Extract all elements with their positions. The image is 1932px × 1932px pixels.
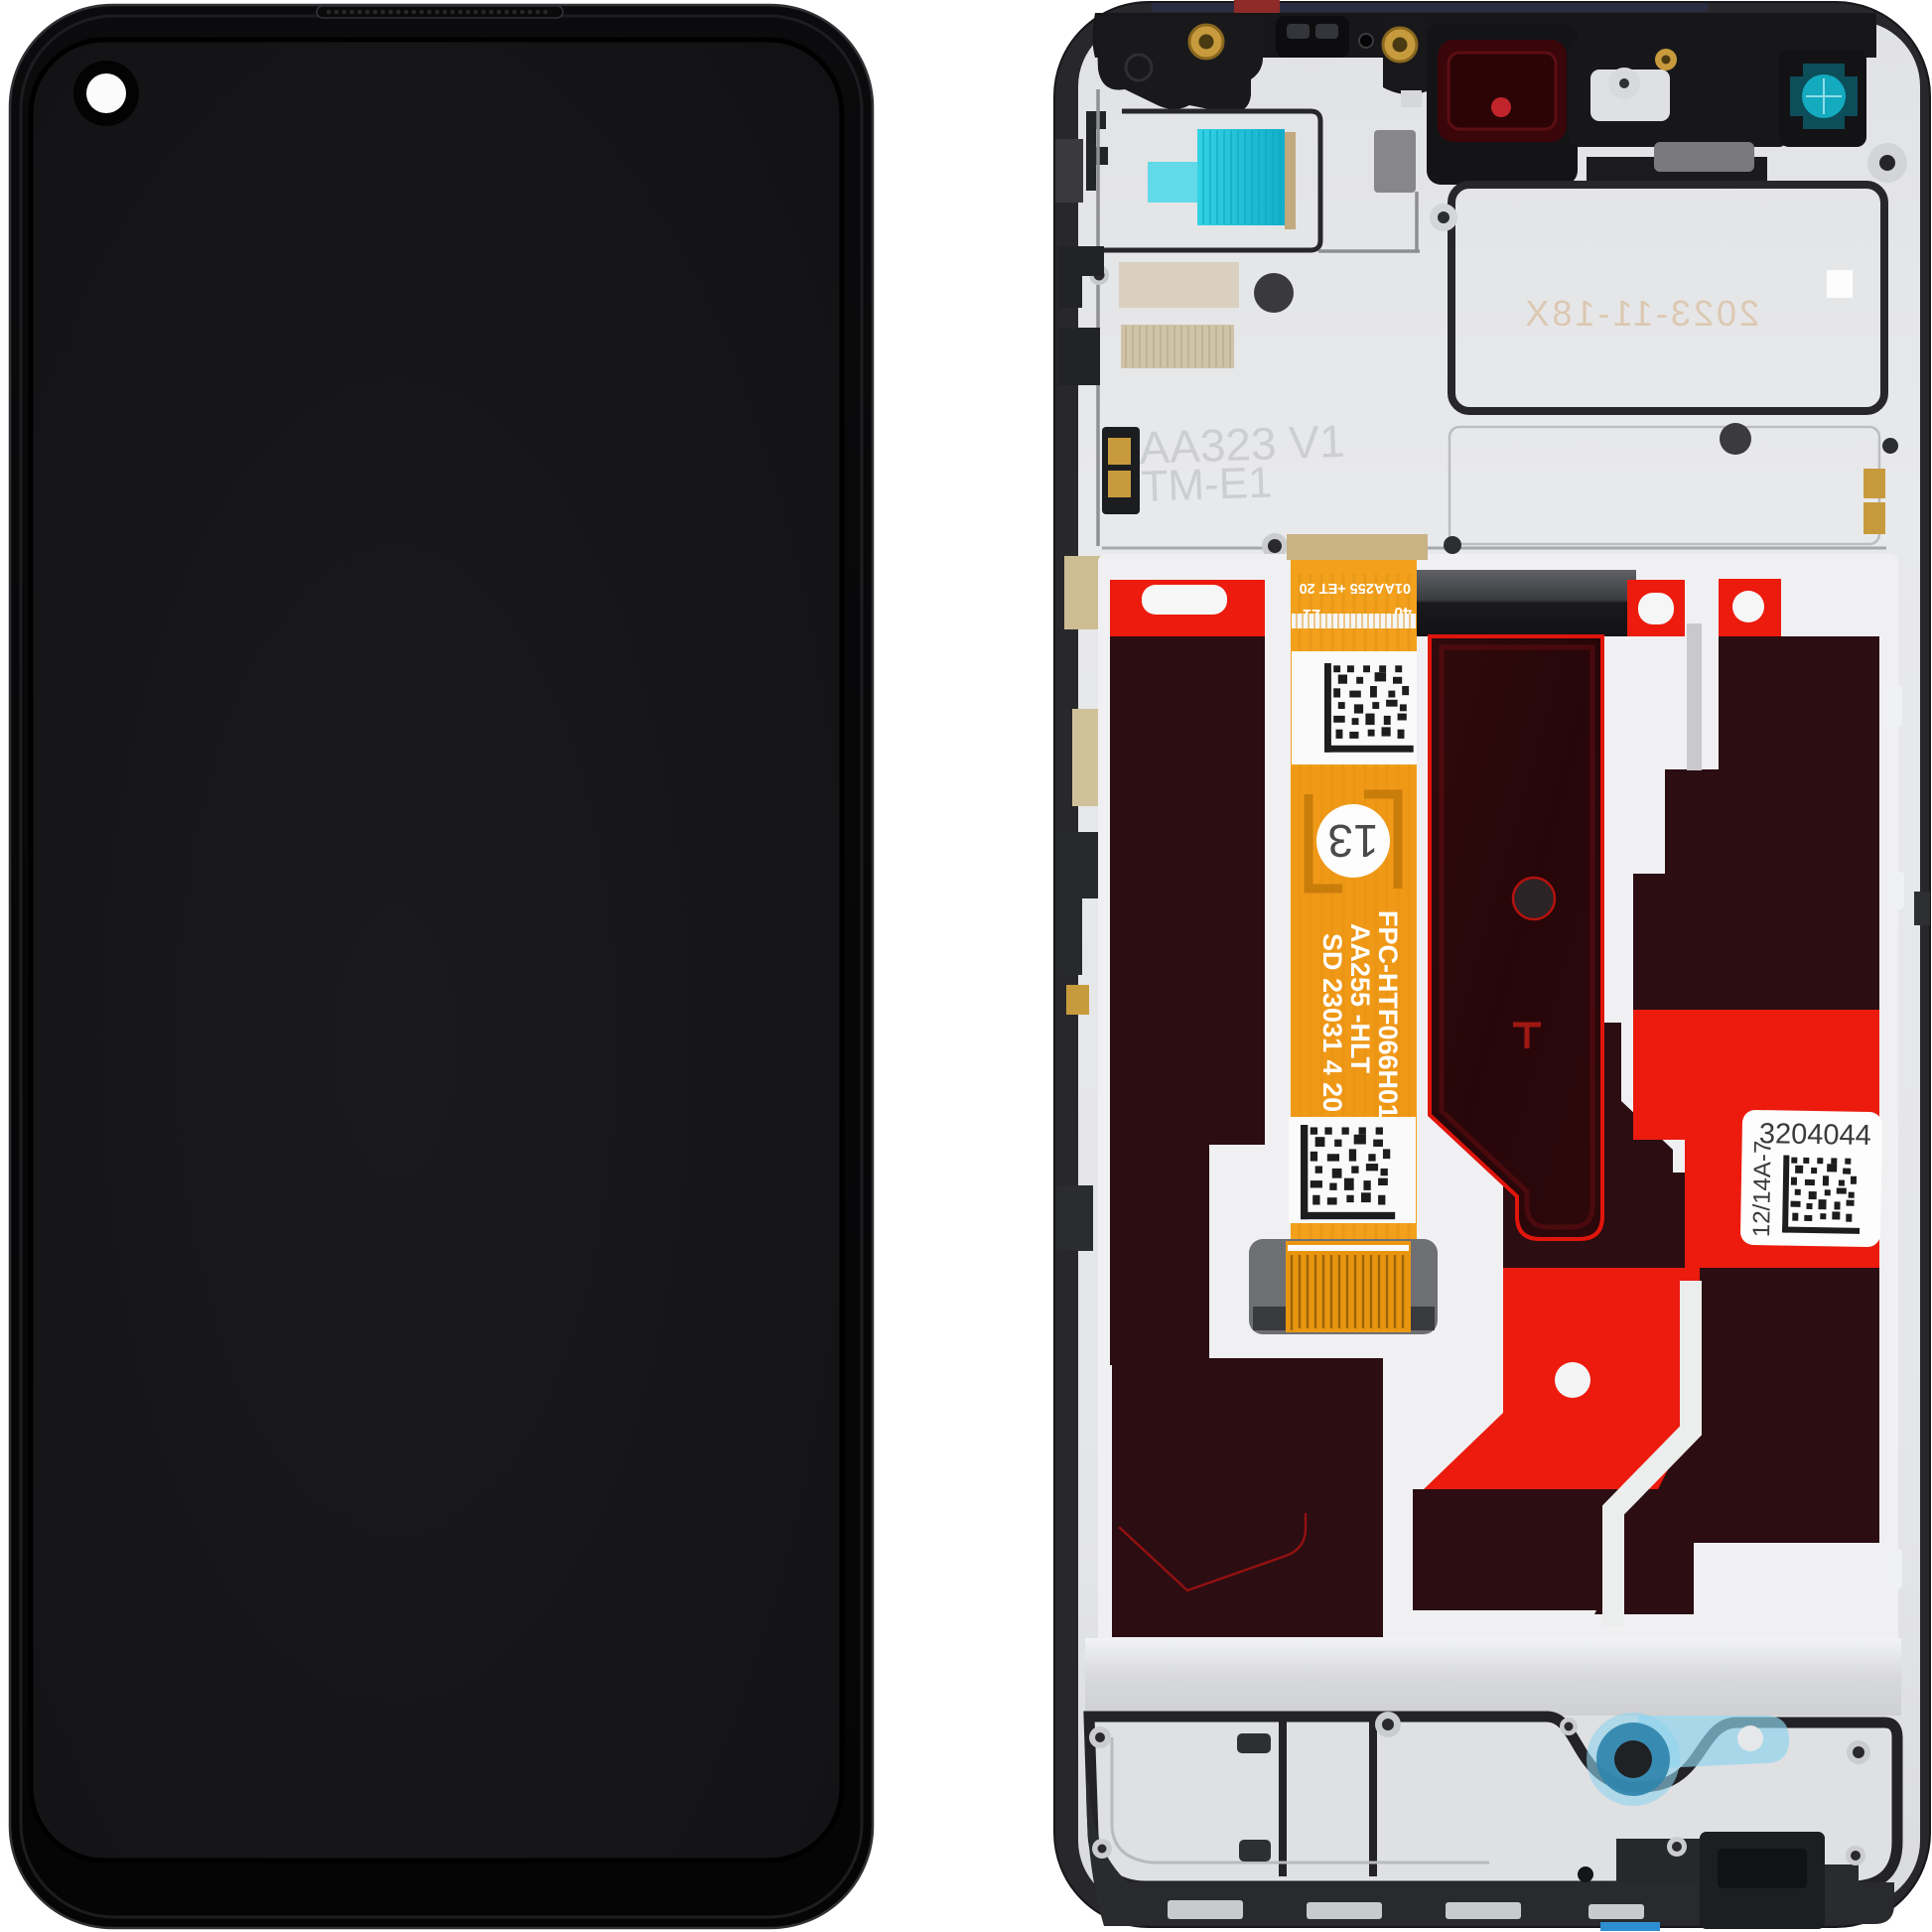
svg-text:SD 23031 4 20: SD 23031 4 20	[1317, 933, 1347, 1112]
svg-text:01AA255 +ET 20: 01AA255 +ET 20	[1300, 580, 1411, 596]
svg-text:TM-E1: TM-E1	[1141, 458, 1274, 511]
svg-text:13: 13	[1327, 815, 1378, 867]
svg-text:12/14A-7: 12/14A-7	[1748, 1141, 1777, 1238]
svg-text:AA255 -HLT: AA255 -HLT	[1345, 923, 1375, 1074]
svg-text:2023-11-18X: 2023-11-18X	[1523, 293, 1760, 334]
